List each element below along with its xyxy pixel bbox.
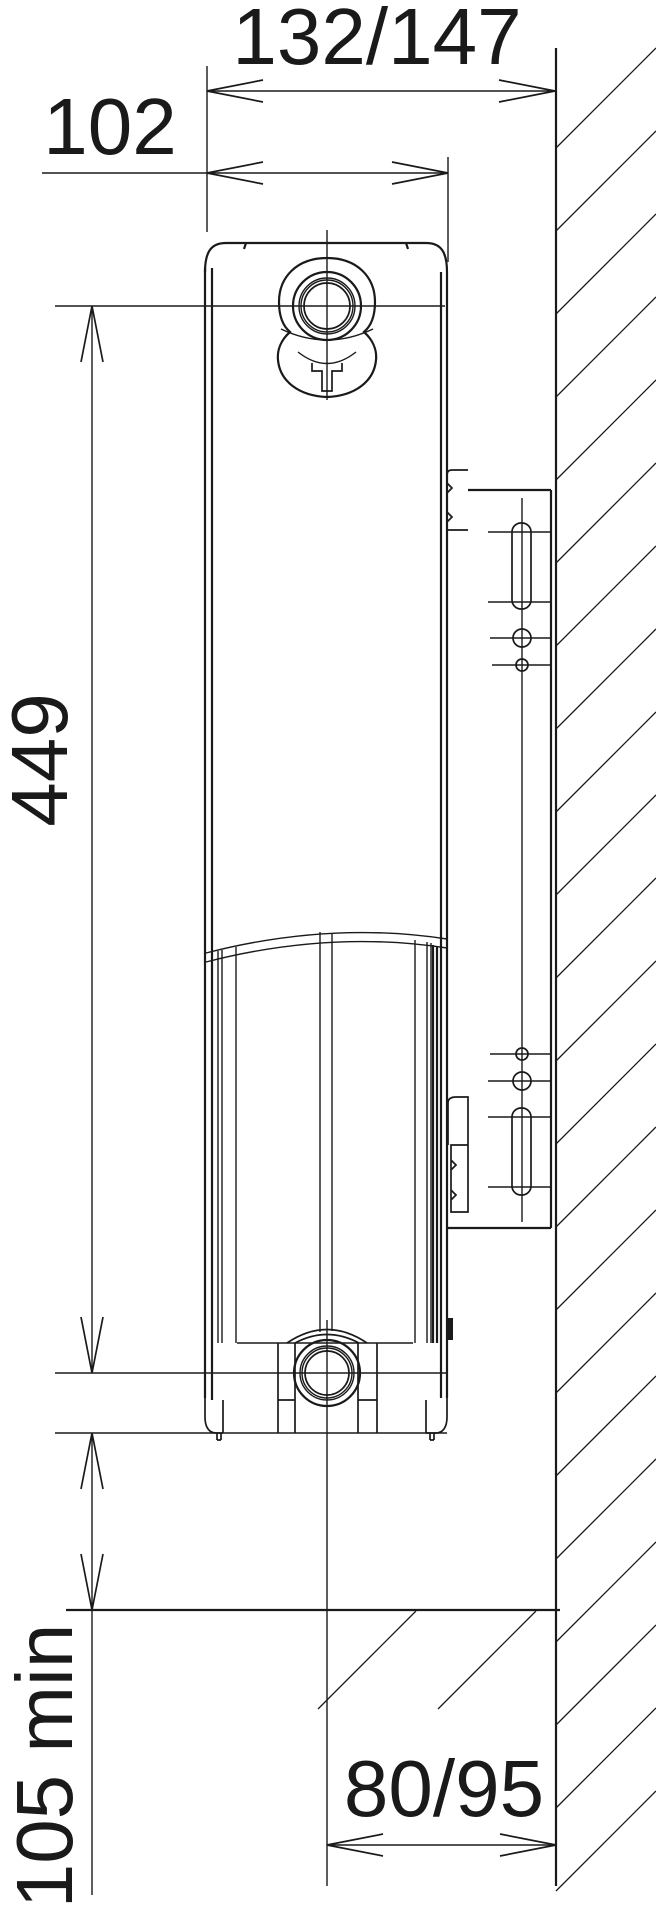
dimension-overall-depth: 132/147 [207, 0, 555, 232]
bracket-lower-clip [448, 1097, 468, 1212]
dimension-connection-spacing: 449 [0, 306, 103, 1373]
dim-wall-to-pipe-label: 80/95 [344, 1744, 544, 1833]
dimension-floor-clearance: 105 min [0, 1433, 103, 1908]
radiator-back-panel [433, 272, 447, 1398]
wall-bracket [447, 470, 551, 1340]
bracket-upper-clip [447, 470, 468, 530]
top-pipe-connection [55, 230, 445, 400]
dimension-panel-depth: 102 [42, 82, 448, 262]
floor-hatching [318, 1611, 536, 1709]
dimension-wall-to-pipe: 80/95 [327, 1744, 556, 1856]
radiator-grille-arcs [206, 933, 447, 962]
wall-hatching [556, 48, 656, 1891]
bracket-lower-feature-lines [488, 1054, 551, 1187]
dim-panel-depth-label: 102 [43, 82, 176, 171]
bracket-upper-feature-lines [488, 532, 551, 665]
radiator-convector-fins [218, 932, 431, 1343]
radiator-body [55, 243, 447, 1440]
dim-floor-clearance-label: 105 min [0, 1624, 89, 1909]
floor [66, 1610, 560, 1709]
radiator-feet [205, 1343, 447, 1440]
dim-overall-depth-lines [207, 66, 555, 232]
radiator-installation-drawing: 132/147 102 449 105 min 80/95 [0, 0, 656, 1912]
dim-overall-depth-label: 132/147 [232, 0, 521, 81]
drawing-svg: 132/147 102 449 105 min 80/95 [0, 0, 656, 1912]
wall [556, 48, 656, 1891]
radiator-front-panel [205, 268, 212, 1400]
top-connection-centerlines [55, 230, 445, 400]
dim-connection-spacing-label: 449 [0, 693, 84, 826]
